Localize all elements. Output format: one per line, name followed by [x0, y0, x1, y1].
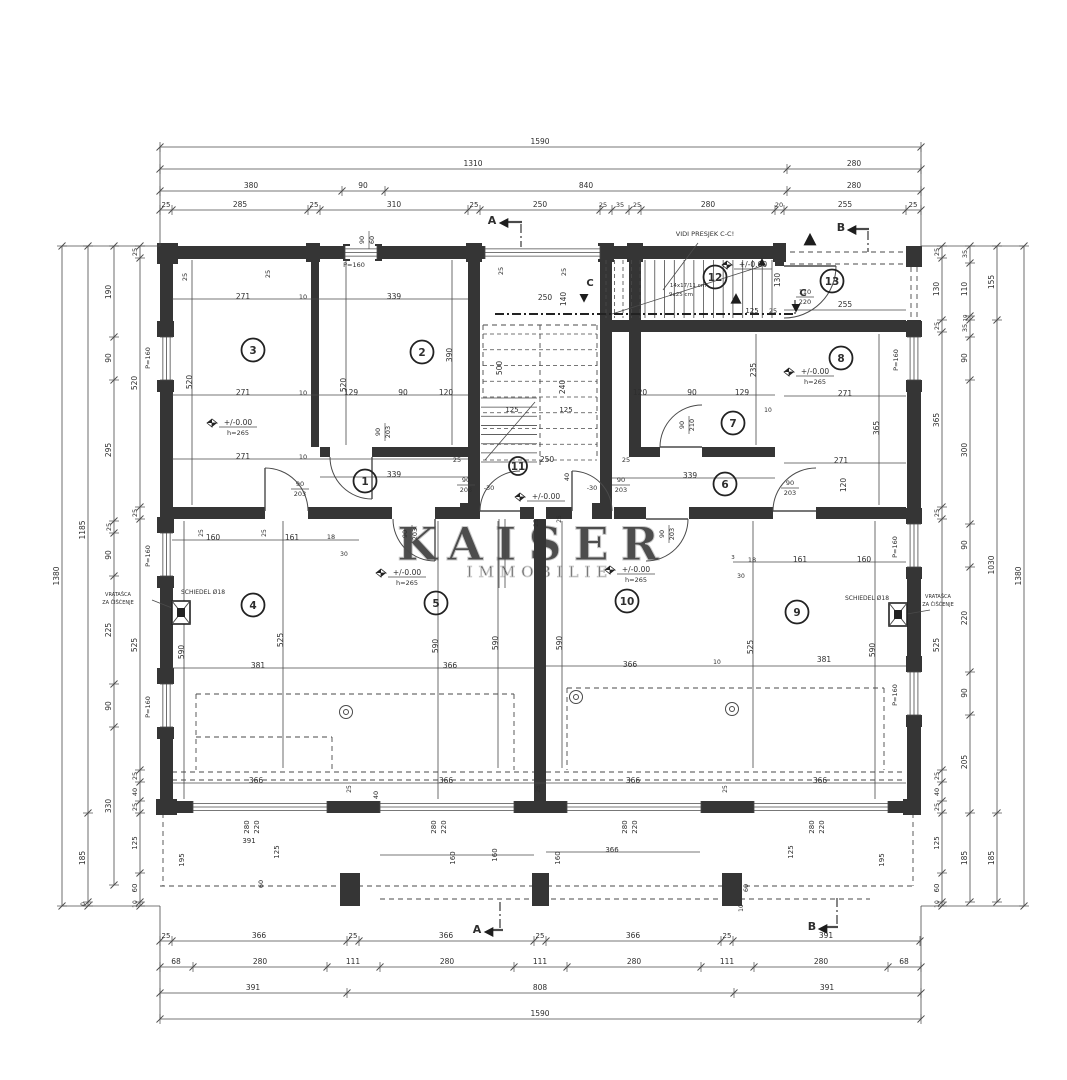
- svg-text:525: 525: [746, 640, 755, 655]
- svg-text:120: 120: [839, 478, 848, 493]
- svg-text:10: 10: [963, 314, 969, 321]
- svg-text:525: 525: [276, 633, 285, 648]
- svg-text:8: 8: [837, 353, 844, 365]
- svg-text:120: 120: [633, 388, 648, 397]
- svg-text:P=160: P=160: [891, 536, 899, 558]
- svg-text:280: 280: [627, 957, 642, 966]
- room-label-8: 8: [830, 347, 853, 370]
- svg-text:90: 90: [104, 353, 113, 363]
- svg-text:h=265: h=265: [804, 378, 826, 386]
- svg-text:7: 7: [729, 418, 736, 430]
- svg-text:391: 391: [820, 983, 835, 992]
- svg-text:25: 25: [131, 509, 139, 517]
- svg-text:25: 25: [533, 519, 540, 527]
- svg-text:280: 280: [243, 820, 251, 833]
- svg-text:0: 0: [80, 902, 87, 906]
- svg-text:10: 10: [738, 904, 745, 912]
- svg-text:4: 4: [249, 600, 256, 612]
- svg-text:300: 300: [960, 443, 969, 458]
- svg-text:220: 220: [253, 820, 261, 833]
- svg-text:90: 90: [296, 480, 304, 488]
- svg-text:111: 111: [720, 957, 735, 966]
- svg-text:25: 25: [346, 785, 353, 793]
- svg-text:40: 40: [933, 788, 941, 796]
- svg-text:161: 161: [793, 555, 808, 564]
- svg-text:185: 185: [987, 851, 996, 866]
- svg-text:C: C: [586, 278, 593, 289]
- svg-text:90: 90: [960, 688, 969, 698]
- svg-text:390: 390: [445, 348, 454, 363]
- svg-text:25: 25: [909, 201, 918, 209]
- svg-text:365: 365: [932, 413, 941, 428]
- room-label-6: 6: [714, 473, 737, 496]
- svg-text:235: 235: [749, 363, 758, 378]
- svg-text:40: 40: [372, 791, 380, 799]
- svg-text:285: 285: [233, 200, 248, 209]
- svg-text:10: 10: [299, 389, 307, 397]
- svg-text:220: 220: [440, 820, 448, 833]
- svg-text:391: 391: [242, 837, 255, 845]
- svg-text:P=160: P=160: [144, 347, 152, 369]
- svg-text:225: 225: [104, 623, 113, 638]
- room-label-5: 5: [425, 592, 448, 615]
- svg-text:25: 25: [261, 529, 268, 537]
- svg-text:203: 203: [784, 489, 796, 497]
- svg-text:520: 520: [185, 375, 194, 390]
- svg-text:P=160: P=160: [144, 545, 152, 567]
- svg-text:60: 60: [742, 884, 750, 892]
- svg-text:2: 2: [418, 347, 425, 359]
- svg-text:125: 125: [745, 307, 758, 315]
- svg-text:40: 40: [563, 473, 571, 481]
- svg-text:339: 339: [387, 470, 402, 479]
- svg-text:110: 110: [799, 288, 811, 296]
- svg-text:125: 125: [131, 836, 139, 849]
- svg-text:125: 125: [787, 845, 795, 858]
- svg-text:68: 68: [899, 957, 909, 966]
- svg-text:A: A: [488, 214, 497, 227]
- svg-text:310: 310: [387, 200, 402, 209]
- svg-text:330: 330: [104, 799, 113, 814]
- svg-text:90: 90: [658, 530, 666, 538]
- svg-text:366: 366: [605, 846, 619, 854]
- svg-text:271: 271: [236, 452, 251, 461]
- svg-text:25: 25: [933, 803, 941, 811]
- svg-text:366: 366: [623, 660, 638, 669]
- svg-text:125: 125: [933, 836, 941, 849]
- svg-text:280: 280: [847, 181, 862, 190]
- svg-text:30: 30: [340, 551, 348, 558]
- svg-text:129: 129: [735, 388, 750, 397]
- svg-text:25: 25: [535, 785, 542, 793]
- svg-text:381: 381: [817, 655, 832, 664]
- svg-text:P=160: P=160: [343, 261, 365, 269]
- svg-text:25: 25: [933, 322, 941, 330]
- svg-text:220: 220: [818, 820, 826, 833]
- svg-text:VRATAŠCA: VRATAŠCA: [105, 591, 131, 598]
- svg-text:90: 90: [104, 550, 113, 560]
- svg-text:155: 155: [987, 275, 996, 290]
- svg-text:25: 25: [769, 307, 777, 315]
- svg-text:25: 25: [310, 201, 319, 209]
- svg-text:11: 11: [511, 461, 526, 473]
- svg-text:203: 203: [615, 486, 627, 494]
- svg-text:808: 808: [533, 983, 548, 992]
- svg-text:+/-0.00: +/-0.00: [532, 492, 560, 501]
- svg-text:1590: 1590: [530, 1009, 549, 1018]
- svg-text:90: 90: [104, 701, 113, 711]
- svg-text:25: 25: [556, 515, 563, 523]
- svg-text:SCHIEDEL Ø18: SCHIEDEL Ø18: [845, 595, 889, 602]
- svg-text:525: 525: [130, 638, 139, 653]
- svg-text:3: 3: [249, 345, 256, 357]
- svg-text:90: 90: [462, 476, 470, 484]
- svg-text:90: 90: [398, 388, 408, 397]
- svg-text:840: 840: [579, 181, 594, 190]
- svg-text:VIDI PRESJEK C-C!: VIDI PRESJEK C-C!: [676, 230, 734, 238]
- svg-text:B: B: [808, 920, 816, 933]
- room-label-13: 13: [821, 270, 844, 293]
- svg-text:255: 255: [838, 300, 853, 309]
- svg-text:271: 271: [236, 292, 251, 301]
- svg-text:h=265: h=265: [625, 576, 647, 584]
- svg-text:10: 10: [713, 659, 721, 666]
- svg-text:60: 60: [933, 884, 941, 893]
- svg-text:90: 90: [358, 181, 368, 190]
- svg-text:125: 125: [273, 845, 281, 858]
- svg-text:160: 160: [449, 851, 457, 864]
- svg-text:1590: 1590: [530, 137, 549, 146]
- svg-text:12: 12: [708, 272, 723, 284]
- svg-text:25: 25: [560, 268, 568, 276]
- svg-text:90: 90: [401, 530, 409, 538]
- svg-text:1030: 1030: [987, 555, 996, 574]
- svg-text:381: 381: [251, 661, 266, 670]
- svg-text:271: 271: [236, 388, 251, 397]
- svg-text:280: 280: [621, 820, 629, 833]
- svg-text:25: 25: [933, 772, 941, 780]
- svg-text:25: 25: [162, 201, 171, 209]
- room-label-2: 2: [411, 341, 434, 364]
- svg-text:271: 271: [834, 456, 849, 465]
- svg-text:280: 280: [253, 957, 268, 966]
- svg-text:25: 25: [622, 456, 630, 464]
- svg-text:525: 525: [932, 638, 941, 653]
- svg-text:60: 60: [131, 884, 139, 893]
- room-label-9: 9: [786, 601, 809, 624]
- svg-text:P=160: P=160: [144, 696, 152, 718]
- svg-text:90: 90: [687, 388, 697, 397]
- svg-text:25: 25: [497, 267, 505, 275]
- svg-text:10: 10: [620, 596, 635, 608]
- svg-text:+/-0.00: +/-0.00: [224, 418, 252, 427]
- svg-text:VRATAŠCA: VRATAŠCA: [925, 593, 951, 600]
- svg-text:ZA ČIŠĆENJE: ZA ČIŠĆENJE: [102, 599, 134, 606]
- svg-text:18: 18: [327, 533, 335, 541]
- svg-text:255: 255: [838, 200, 853, 209]
- svg-text:13: 13: [825, 276, 840, 288]
- svg-text:391: 391: [246, 983, 261, 992]
- floor-plan-drawing: KAISERIMMOBILIE1590131028038090840280252…: [0, 0, 1067, 1080]
- svg-text:271: 271: [838, 389, 853, 398]
- svg-text:90: 90: [617, 476, 625, 484]
- svg-text:90: 90: [960, 353, 969, 363]
- svg-text:10: 10: [764, 407, 772, 414]
- svg-text:130: 130: [932, 282, 941, 297]
- svg-text:590: 590: [868, 643, 877, 658]
- svg-text:60: 60: [257, 880, 265, 888]
- svg-text:185: 185: [960, 851, 969, 866]
- svg-text:25: 25: [264, 270, 272, 278]
- svg-text:520: 520: [130, 376, 139, 391]
- svg-text:+/-0.00: +/-0.00: [622, 565, 650, 574]
- svg-text:125: 125: [559, 406, 572, 414]
- svg-text:1: 1: [361, 476, 368, 488]
- svg-text:280: 280: [814, 957, 829, 966]
- svg-text:-30: -30: [484, 484, 495, 492]
- svg-text:-30: -30: [587, 484, 598, 492]
- svg-text:590: 590: [431, 639, 440, 654]
- svg-text:h=265: h=265: [396, 579, 418, 587]
- svg-text:25: 25: [722, 785, 729, 793]
- svg-text:25: 25: [131, 772, 139, 780]
- svg-text:190: 190: [104, 285, 113, 300]
- svg-text:130: 130: [773, 273, 782, 288]
- svg-text:366: 366: [252, 931, 267, 940]
- svg-text:161: 161: [285, 533, 300, 542]
- svg-text:P=160: P=160: [892, 349, 900, 371]
- svg-text:365: 365: [872, 421, 881, 436]
- svg-text:h=265: h=265: [227, 429, 249, 437]
- svg-text:160: 160: [857, 555, 872, 564]
- svg-text:25: 25: [933, 248, 941, 256]
- svg-text:160: 160: [206, 533, 221, 542]
- svg-text:295: 295: [104, 443, 113, 458]
- svg-text:250: 250: [533, 200, 548, 209]
- svg-text:90: 90: [374, 428, 382, 436]
- svg-text:185: 185: [78, 851, 87, 866]
- svg-text:20: 20: [775, 201, 783, 209]
- room-label-3: 3: [242, 339, 265, 362]
- svg-text:25: 25: [453, 456, 461, 464]
- svg-text:160: 160: [491, 848, 499, 861]
- svg-text:9x25 cm: 9x25 cm: [669, 292, 693, 298]
- room-label-7: 7: [722, 412, 745, 435]
- svg-text:220: 220: [799, 298, 811, 306]
- svg-text:30: 30: [737, 573, 745, 580]
- svg-text:90: 90: [960, 540, 969, 550]
- svg-text:339: 339: [683, 471, 698, 480]
- svg-text:590: 590: [177, 645, 186, 660]
- floor-plan-page: KAISERIMMOBILIE1590131028038090840280252…: [0, 0, 1067, 1080]
- svg-text:35: 35: [616, 201, 624, 209]
- svg-text:18: 18: [748, 556, 756, 564]
- svg-text:+/-0.00: +/-0.00: [393, 568, 421, 577]
- svg-text:280: 280: [430, 820, 438, 833]
- svg-text:366: 366: [249, 776, 264, 785]
- svg-text:25: 25: [131, 803, 139, 811]
- svg-text:90: 90: [786, 479, 794, 487]
- svg-text:250: 250: [538, 293, 553, 302]
- svg-text:129: 129: [344, 388, 359, 397]
- svg-text:10: 10: [299, 293, 307, 301]
- svg-text:25: 25: [198, 529, 205, 537]
- svg-text:1380: 1380: [52, 566, 61, 585]
- svg-text:35: 35: [961, 324, 969, 332]
- svg-text:590: 590: [491, 636, 500, 651]
- svg-text:590: 590: [555, 636, 564, 651]
- svg-text:366: 366: [439, 931, 454, 940]
- svg-text:25: 25: [349, 932, 358, 940]
- stairs: [481, 260, 772, 462]
- svg-text:3: 3: [731, 555, 735, 561]
- svg-text:5: 5: [432, 598, 439, 610]
- svg-text:10: 10: [299, 453, 307, 461]
- room-label-1: 1: [354, 470, 377, 493]
- svg-text:A: A: [473, 923, 482, 936]
- svg-text:240: 240: [558, 380, 567, 395]
- svg-text:339: 339: [387, 292, 402, 301]
- svg-text:6: 6: [721, 479, 728, 491]
- svg-text:10: 10: [132, 900, 139, 908]
- svg-text:220: 220: [960, 611, 969, 626]
- svg-text:280: 280: [808, 820, 816, 833]
- svg-text:366: 366: [626, 931, 641, 940]
- svg-text:25: 25: [599, 201, 607, 209]
- svg-text:366: 366: [439, 776, 454, 785]
- svg-text:25: 25: [181, 273, 189, 281]
- svg-text:25: 25: [536, 932, 545, 940]
- svg-text:40: 40: [131, 788, 139, 796]
- svg-text:35: 35: [961, 250, 969, 258]
- svg-text:111: 111: [533, 957, 548, 966]
- room-label-10: 10: [616, 590, 639, 613]
- svg-text:90: 90: [358, 236, 366, 244]
- svg-text:1185: 1185: [78, 520, 87, 539]
- svg-text:25: 25: [470, 201, 479, 209]
- svg-text:SCHIEDEL Ø18: SCHIEDEL Ø18: [181, 589, 225, 596]
- svg-text:366: 366: [813, 776, 828, 785]
- svg-text:110: 110: [960, 282, 969, 297]
- svg-text:250: 250: [540, 455, 555, 464]
- svg-text:1310: 1310: [463, 159, 482, 168]
- svg-text:140: 140: [559, 292, 568, 307]
- svg-text:380: 380: [244, 181, 259, 190]
- svg-text:25: 25: [633, 201, 641, 209]
- svg-text:1380: 1380: [1014, 566, 1023, 585]
- svg-text:205: 205: [960, 755, 969, 770]
- svg-text:280: 280: [440, 957, 455, 966]
- svg-text:25: 25: [105, 523, 113, 531]
- svg-text:111: 111: [346, 957, 361, 966]
- svg-text:195: 195: [878, 853, 886, 866]
- svg-text:120: 120: [439, 388, 454, 397]
- svg-text:14x17/11 cm: 14x17/11 cm: [670, 283, 706, 289]
- svg-text:195: 195: [178, 853, 186, 866]
- svg-text:9: 9: [793, 607, 800, 619]
- svg-text:500: 500: [495, 361, 504, 376]
- svg-text:160: 160: [554, 851, 562, 864]
- svg-text:P=160: P=160: [891, 684, 899, 706]
- room-label-4: 4: [242, 594, 265, 617]
- svg-text:B: B: [837, 221, 845, 234]
- svg-text:25: 25: [933, 509, 941, 517]
- svg-text:25: 25: [131, 248, 139, 256]
- svg-text:125: 125: [505, 406, 518, 414]
- svg-text:203: 203: [460, 486, 472, 494]
- walls: [160, 246, 921, 813]
- svg-text:366: 366: [443, 661, 458, 670]
- svg-text:ZA ČIŠĆENJE: ZA ČIŠĆENJE: [922, 601, 954, 608]
- svg-text:68: 68: [171, 957, 181, 966]
- svg-text:+/-0.00: +/-0.00: [801, 367, 829, 376]
- svg-text:220: 220: [631, 820, 639, 833]
- svg-text:10: 10: [934, 900, 941, 908]
- svg-text:25: 25: [162, 932, 171, 940]
- svg-text:90: 90: [678, 421, 686, 429]
- svg-text:25: 25: [723, 932, 732, 940]
- svg-text:366: 366: [626, 776, 641, 785]
- svg-text:280: 280: [701, 200, 716, 209]
- svg-text:280: 280: [847, 159, 862, 168]
- svg-text:203: 203: [294, 490, 306, 498]
